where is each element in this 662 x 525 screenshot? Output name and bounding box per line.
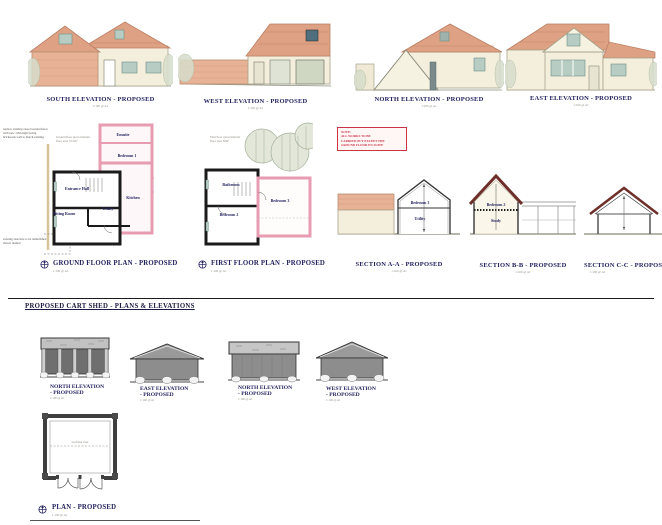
figure-scale: 1:100 @ A1	[52, 513, 112, 517]
figure-scale: 1:100 @ A1	[590, 270, 650, 274]
figure-scale: 1:100 @ A1	[178, 106, 333, 110]
section-room-label: Utility	[406, 217, 434, 222]
room-label-bedroom3: Bedroom 3	[262, 199, 298, 204]
room-label-bathroom: Bathroom	[213, 183, 249, 188]
section-divider-line	[8, 298, 654, 299]
room-label-entrance-hall: Entrance Hall	[56, 187, 98, 192]
figure-scale: 1:100 @ A1	[354, 104, 504, 108]
section-aa-drawing	[336, 170, 462, 244]
room-label-sitting-room: Sitting Room	[50, 212, 78, 217]
cartshed-elevation-3-label: NORTH ELEVATION - PROPOSED 1:100 @ A1	[228, 385, 300, 401]
figure-scale: 1:100 @ A1	[316, 398, 388, 402]
figure-scale: 1:100 @ A1	[336, 269, 462, 273]
cart-shed-heading: PROPOSED CART SHED - PLANS & ELEVATIONS	[25, 303, 195, 310]
room-label-kitchen: Kitchen	[118, 196, 148, 201]
room-label-bedroom1: Bedroom 1	[110, 154, 144, 159]
cartshed-north-elevation-drawing-1	[40, 336, 110, 382]
figure-scale: 1:100 @ A1	[505, 103, 657, 107]
north-arrow-icon	[38, 505, 47, 514]
west-elevation-drawing	[178, 16, 333, 94]
north-arrow-icon	[198, 260, 207, 269]
cartshed-plan-drawing	[40, 412, 120, 500]
figure-scale: 1:100 @ A1	[130, 398, 204, 402]
cartshed-elevation-4-label: WEST ELEVATION - PROPOSED 1:100 @ A1	[316, 386, 388, 402]
figure-scale: 1:100 @ A1	[53, 269, 113, 273]
figure-title: FIRST FLOOR PLAN - PROPOSED	[211, 260, 341, 267]
area-note: Ground floor gross internal floor area 7…	[56, 136, 94, 144]
figure-title: SOUTH ELEVATION - PROPOSED	[28, 96, 173, 103]
room-label-bedroom2: Bedroom 2	[211, 213, 247, 218]
note-box: NOTE: ALL WORKS TO BE CARRIED OUT EXCEPT…	[337, 127, 407, 151]
figure-title: PLAN - PROPOSED	[52, 504, 152, 511]
room-label-utility: Utility	[96, 207, 120, 212]
plan-annotation: roof line over	[58, 441, 102, 445]
bottom-border-line	[30, 520, 200, 521]
cartshed-elevation-2-label: EAST ELEVATION - PROPOSED 1:100 @ A1	[130, 386, 204, 402]
figure-title: NORTH ELEVATION - PROPOSED	[354, 96, 504, 103]
drawing-sheet: SOUTH ELEVATION - PROPOSED 1:100 @ A1 WE…	[0, 0, 662, 525]
south-elevation-drawing	[28, 14, 173, 92]
section-room-label: Study	[482, 219, 510, 224]
figure-title: SECTION C-C - PROPOSED	[584, 262, 662, 269]
section-room-label: Bedroom 3	[402, 201, 438, 206]
note-line: GROUND FLOOR EN-SUITE	[341, 143, 403, 147]
figure-title: WEST ELEVATION - PROPOSED	[178, 98, 333, 105]
north-arrow-icon	[40, 260, 49, 269]
north-elevation-drawing	[354, 14, 504, 94]
figure-title: SECTION B-B - PROPOSED	[468, 262, 578, 269]
cartshed-elevation-1-label: NORTH ELEVATION - PROPOSED 1:100 @ A1	[40, 384, 112, 400]
east-elevation-drawing	[505, 14, 657, 92]
figure-title: EAST ELEVATION - PROPOSED	[505, 95, 657, 102]
figure-title: SECTION A-A - PROPOSED	[336, 261, 462, 268]
figure-scale: 1:100 @ A1	[211, 269, 271, 273]
figure-scale: 1:100 @ A1	[28, 104, 173, 108]
cartshed-east-elevation-drawing	[130, 342, 204, 384]
section-room-label: Bedroom 2	[478, 203, 514, 208]
cartshed-north-elevation-drawing-2	[228, 340, 300, 384]
figure-title: GROUND FLOOR PLAN - PROPOSED	[53, 260, 183, 267]
cartshed-west-elevation-drawing	[316, 340, 388, 384]
figure-scale: 1:100 @ A1	[228, 397, 300, 401]
section-cc-drawing	[584, 176, 662, 240]
room-label-ensuite: Ensuite	[108, 133, 138, 138]
figure-scale: 1:100 @ A1	[40, 396, 112, 400]
area-note: First floor gross internal floor area 56…	[210, 136, 246, 144]
figure-scale: 1:100 @ A1	[468, 270, 578, 274]
